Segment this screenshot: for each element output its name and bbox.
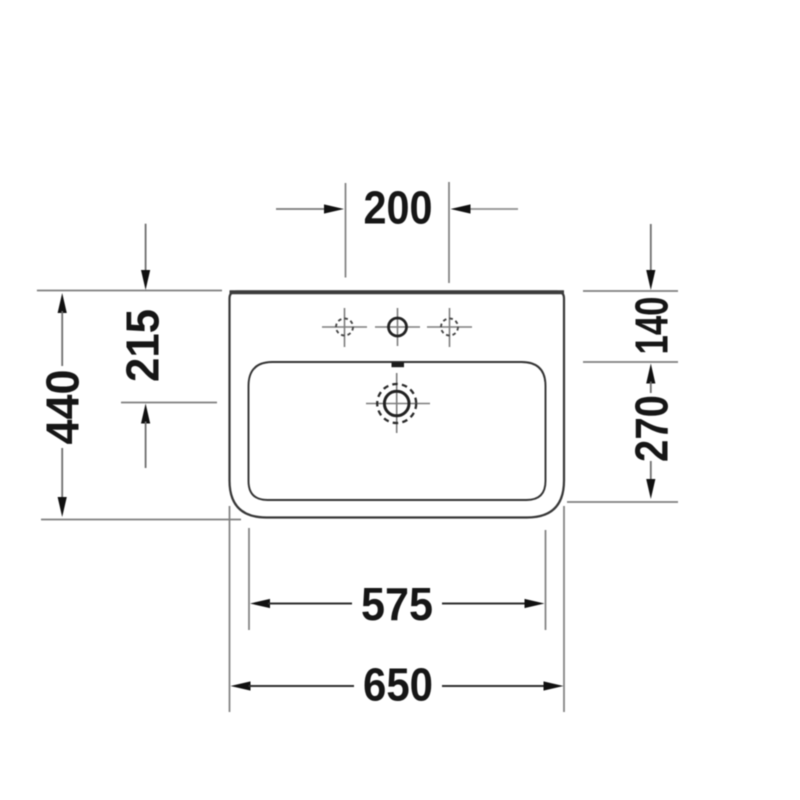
svg-text:140: 140 — [626, 297, 678, 355]
svg-text:575: 575 — [361, 578, 433, 630]
svg-text:200: 200 — [364, 182, 433, 234]
svg-text:270: 270 — [626, 395, 678, 462]
svg-text:215: 215 — [117, 309, 169, 382]
svg-text:440: 440 — [36, 370, 88, 445]
svg-text:650: 650 — [363, 659, 433, 711]
